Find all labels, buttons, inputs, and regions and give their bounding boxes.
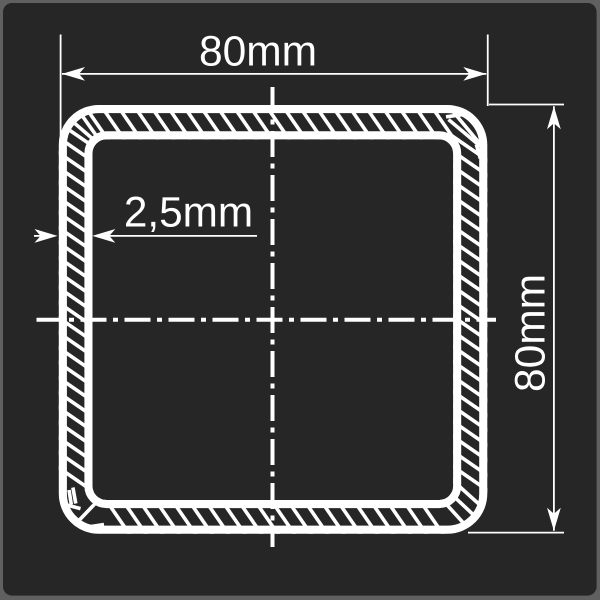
- svg-text:80mm: 80mm: [508, 274, 555, 392]
- svg-text:2,5mm: 2,5mm: [124, 189, 253, 236]
- svg-text:80mm: 80mm: [199, 28, 317, 75]
